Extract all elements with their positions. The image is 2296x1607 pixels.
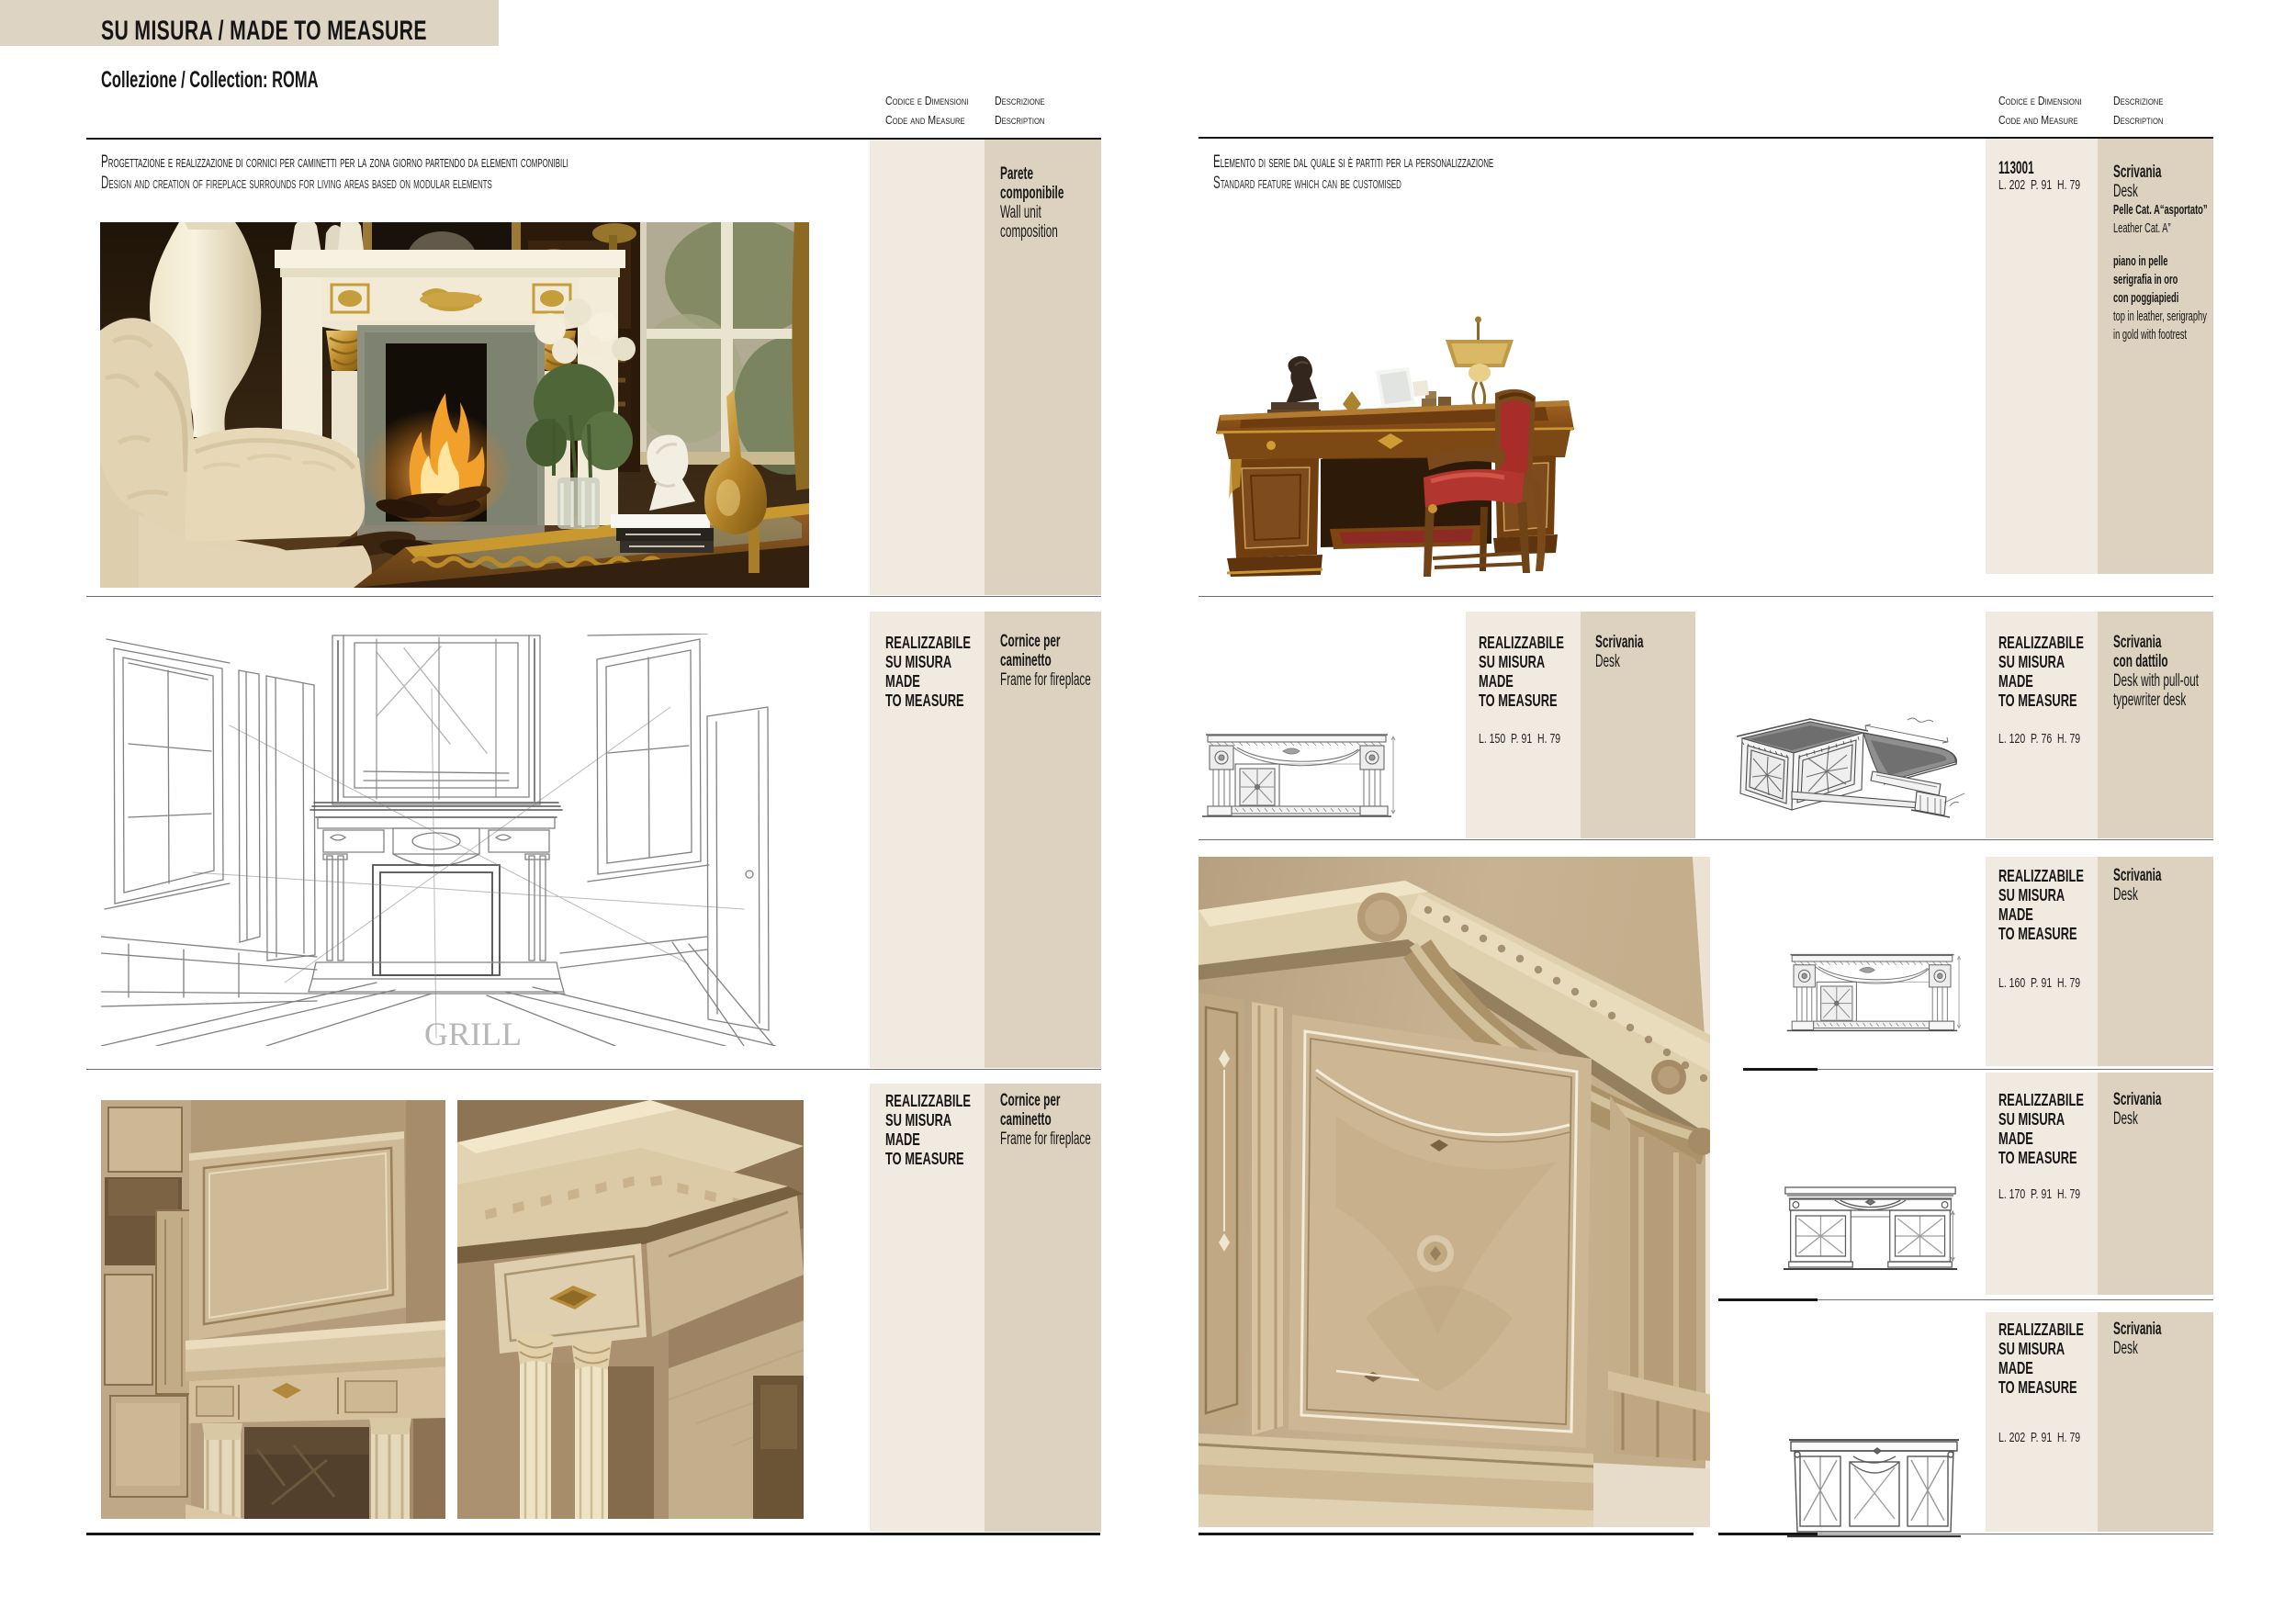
svg-text:GRILL: GRILL — [424, 1016, 522, 1046]
